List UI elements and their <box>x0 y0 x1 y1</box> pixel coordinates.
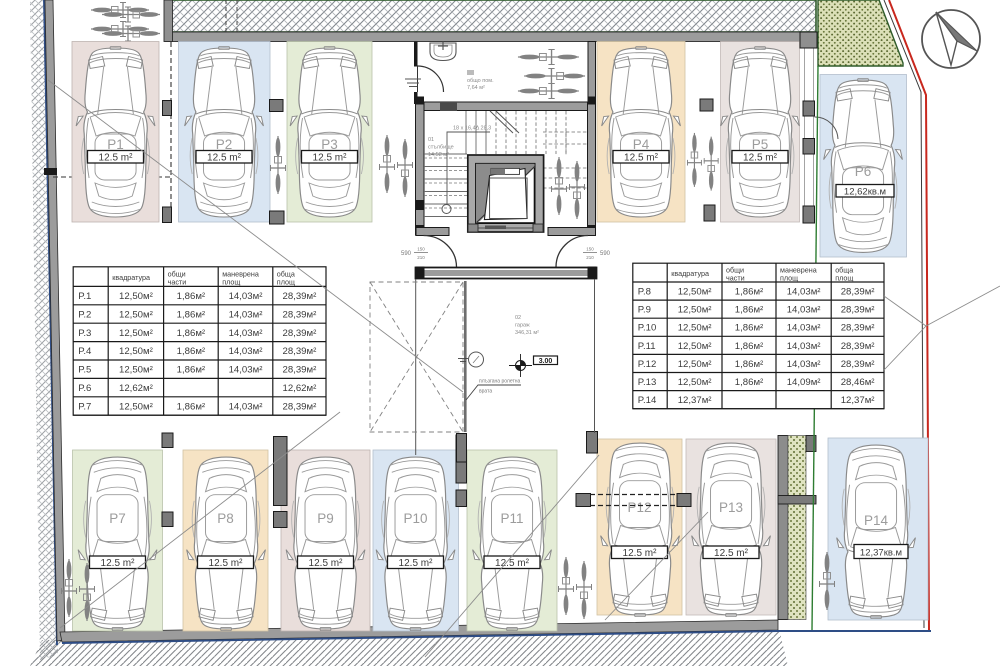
svg-text:12.5 m²: 12.5 m² <box>207 153 242 164</box>
svg-text:12.5 m²: 12.5 m² <box>309 558 344 569</box>
svg-text:площ: площ <box>835 274 853 283</box>
svg-text:P.5: P.5 <box>78 365 91 376</box>
svg-text:12,50м²: 12,50м² <box>678 341 713 352</box>
svg-text:1,86м²: 1,86м² <box>177 365 206 376</box>
svg-text:части: части <box>168 277 187 286</box>
svg-text:28,39м²: 28,39м² <box>282 401 317 412</box>
svg-text:P2: P2 <box>216 137 233 152</box>
svg-text:14,03м²: 14,03м² <box>787 359 822 370</box>
svg-text:12,50м²: 12,50м² <box>119 401 154 412</box>
svg-text:12,50м²: 12,50м² <box>678 323 713 334</box>
svg-text:P.3: P.3 <box>78 328 91 339</box>
svg-text:1,86м²: 1,86м² <box>735 305 764 316</box>
svg-text:12,62м²: 12,62м² <box>119 383 154 394</box>
svg-text:P.2: P.2 <box>78 309 91 320</box>
svg-text:14,03м²: 14,03м² <box>787 341 822 352</box>
svg-text:квадратура: квадратура <box>671 269 709 278</box>
svg-text:12.5 m²: 12.5 m² <box>399 558 434 569</box>
svg-text:гараж: гараж <box>515 323 530 329</box>
svg-text:28,39м²: 28,39м² <box>841 323 876 334</box>
svg-text:P.9: P.9 <box>638 305 651 316</box>
svg-text:12,50м²: 12,50м² <box>119 309 154 320</box>
svg-text:12.5 m²: 12.5 m² <box>209 558 244 569</box>
svg-text:1,86м²: 1,86м² <box>177 346 206 357</box>
svg-text:площ: площ <box>222 277 240 286</box>
svg-text:P.6: P.6 <box>78 383 91 394</box>
svg-text:1,86м²: 1,86м² <box>177 291 206 302</box>
svg-text:28,46м²: 28,46м² <box>841 377 876 388</box>
svg-text:12.5 m²: 12.5 m² <box>623 548 658 559</box>
svg-text:150: 150 <box>417 247 425 252</box>
svg-text:28,39м²: 28,39м² <box>282 309 317 320</box>
svg-text:210: 210 <box>417 255 425 260</box>
svg-text:12,37кв.м: 12,37кв.м <box>860 548 902 559</box>
svg-text:P11: P11 <box>500 511 523 526</box>
svg-text:7,64 м²: 7,64 м² <box>467 85 485 91</box>
svg-text:P5: P5 <box>752 137 769 152</box>
svg-text:P13: P13 <box>719 500 743 515</box>
svg-text:14,03м²: 14,03м² <box>229 328 264 339</box>
svg-text:P7: P7 <box>109 511 126 526</box>
svg-text:P.12: P.12 <box>638 359 657 370</box>
svg-text:P.13: P.13 <box>638 377 657 388</box>
svg-text:590: 590 <box>401 251 412 257</box>
svg-text:площ: площ <box>277 277 295 286</box>
svg-text:14,03м²: 14,03м² <box>229 365 264 376</box>
svg-text:18 х 16,4Δ 28,3: 18 х 16,4Δ 28,3 <box>453 126 491 132</box>
svg-text:P.10: P.10 <box>638 323 657 334</box>
svg-text:P.1: P.1 <box>78 291 91 302</box>
svg-text:12.5 m²: 12.5 m² <box>495 558 530 569</box>
svg-text:14,03м²: 14,03м² <box>787 286 822 297</box>
svg-text:общо пом.: общо пом. <box>467 78 494 84</box>
svg-text:P4: P4 <box>633 137 650 152</box>
svg-text:01: 01 <box>428 137 434 143</box>
svg-text:12.5 m²: 12.5 m² <box>101 558 136 569</box>
svg-text:12.5 m²: 12.5 m² <box>714 548 749 559</box>
svg-text:14,09м²: 14,09м² <box>787 377 822 388</box>
svg-text:плъзгана ролетна: плъзгана ролетна <box>479 379 521 385</box>
svg-text:12,50м²: 12,50м² <box>119 346 154 357</box>
svg-text:590: 590 <box>600 251 611 257</box>
svg-text:12,50м²: 12,50м² <box>119 328 154 339</box>
svg-text:12,62м²: 12,62м² <box>282 383 317 394</box>
svg-text:1,86м²: 1,86м² <box>735 377 764 388</box>
svg-text:1,86м²: 1,86м² <box>177 401 206 412</box>
svg-text:1,86м²: 1,86м² <box>735 341 764 352</box>
svg-text:12,37м²: 12,37м² <box>841 395 876 406</box>
svg-text:02: 02 <box>515 315 521 321</box>
svg-text:28,39м²: 28,39м² <box>282 328 317 339</box>
svg-text:12.5 m²: 12.5 m² <box>99 153 134 164</box>
svg-text:3.00: 3.00 <box>539 358 553 365</box>
svg-text:12,50м²: 12,50м² <box>678 286 713 297</box>
svg-text:12.5 m²: 12.5 m² <box>313 153 348 164</box>
svg-text:P1: P1 <box>107 137 124 152</box>
svg-text:площ: площ <box>780 274 798 283</box>
svg-text:P.4: P.4 <box>78 346 92 357</box>
svg-text:1,86м²: 1,86м² <box>735 359 764 370</box>
svg-text:28,39м²: 28,39м² <box>282 365 317 376</box>
svg-text:P.14: P.14 <box>638 395 657 406</box>
svg-text:P6: P6 <box>855 164 872 179</box>
svg-text:врата: врата <box>479 389 492 395</box>
svg-text:14,03м²: 14,03м² <box>229 309 264 320</box>
svg-text:12,37м²: 12,37м² <box>678 395 713 406</box>
svg-text:1,86м²: 1,86м² <box>735 323 764 334</box>
svg-text:12,62кв.м: 12,62кв.м <box>844 187 886 198</box>
svg-text:14,03м²: 14,03м² <box>787 305 822 316</box>
svg-text:12,50м²: 12,50м² <box>678 377 713 388</box>
svg-text:28,39м²: 28,39м² <box>282 291 317 302</box>
svg-text:28,39м²: 28,39м² <box>841 341 876 352</box>
svg-text:12.5 m²: 12.5 m² <box>624 153 659 164</box>
svg-text:28,39м²: 28,39м² <box>841 359 876 370</box>
svg-text:P12: P12 <box>627 500 651 515</box>
svg-text:части: части <box>726 274 745 283</box>
svg-text:12,50м²: 12,50м² <box>119 365 154 376</box>
svg-text:12,50м²: 12,50м² <box>119 291 154 302</box>
svg-text:14,03м²: 14,03м² <box>787 323 822 334</box>
svg-text:P9: P9 <box>317 511 334 526</box>
svg-text:14,03м²: 14,03м² <box>229 291 264 302</box>
svg-text:P14: P14 <box>864 513 889 528</box>
svg-text:1,86м²: 1,86м² <box>177 328 206 339</box>
svg-text:P10: P10 <box>403 511 427 526</box>
svg-text:1,86м²: 1,86м² <box>735 286 764 297</box>
svg-text:P.7: P.7 <box>78 401 91 412</box>
svg-text:P3: P3 <box>321 137 338 152</box>
svg-text:P8: P8 <box>217 511 234 526</box>
svg-text:1,86м²: 1,86м² <box>177 309 206 320</box>
svg-text:P.8: P.8 <box>638 286 651 297</box>
svg-text:14,03м²: 14,03м² <box>229 401 264 412</box>
svg-text:14,52 м²: 14,52 м² <box>428 152 449 158</box>
svg-text:346,31 м²: 346,31 м² <box>515 330 539 336</box>
svg-text:12,50м²: 12,50м² <box>678 305 713 316</box>
svg-text:28,39м²: 28,39м² <box>841 305 876 316</box>
svg-text:210: 210 <box>586 255 594 260</box>
svg-text:стълбище: стълбище <box>428 145 454 151</box>
svg-text:P.11: P.11 <box>638 341 656 352</box>
svg-text:150: 150 <box>586 247 594 252</box>
svg-text:28,39м²: 28,39м² <box>282 346 317 357</box>
svg-text:28,39м²: 28,39м² <box>841 286 876 297</box>
svg-text:квадратура: квадратура <box>112 273 150 282</box>
svg-text:12.5 m²: 12.5 m² <box>743 153 778 164</box>
svg-text:14,03м²: 14,03м² <box>229 346 264 357</box>
svg-text:12,50м²: 12,50м² <box>678 359 713 370</box>
